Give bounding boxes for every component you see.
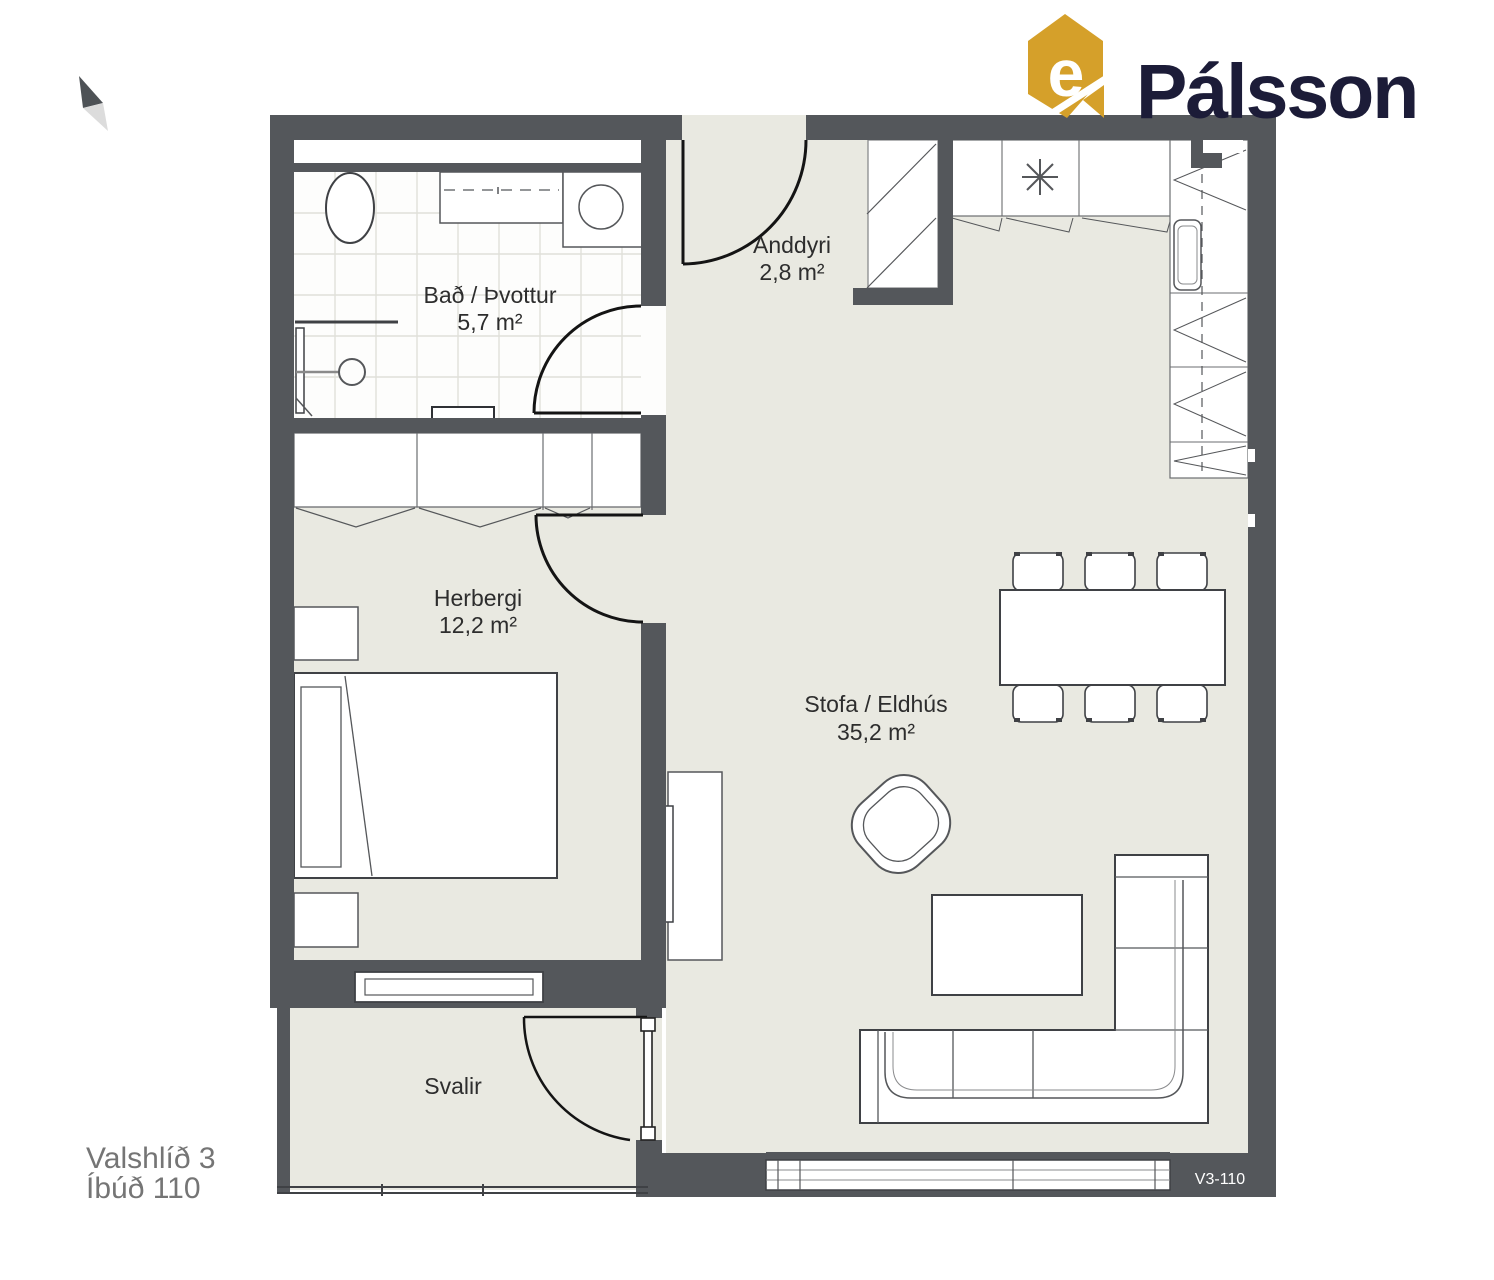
balcony-floor (290, 1008, 636, 1190)
wall-center-upper (641, 115, 666, 306)
logo-letter: e (1048, 36, 1085, 110)
label-entry-name: Anddyri (753, 232, 831, 258)
toilet (326, 173, 374, 243)
wall-closet-stub-v (938, 140, 953, 305)
shower-head (339, 359, 365, 385)
dining-chair (1157, 685, 1207, 722)
label-bathroom-name: Bað / Þvottur (424, 282, 557, 308)
wall-balcony-left (277, 1008, 290, 1192)
dining-chair (1085, 553, 1135, 591)
floorplan-drawing: e Pálsson Bað / Þvottur 5,7 m² Anddyri 2… (0, 0, 1494, 1280)
dining-chair (1157, 553, 1207, 591)
dining-chair (1013, 685, 1063, 722)
address-line-1: Valshlíð 3 (86, 1142, 216, 1175)
nightstand (294, 607, 358, 660)
wall-right (1248, 115, 1276, 1197)
tv-bench (668, 772, 722, 960)
wardrobe (294, 433, 641, 507)
entrance-recess (682, 115, 806, 140)
bathroom-door-threshold (641, 306, 666, 415)
brand-wordmark: Pálsson (1136, 49, 1417, 135)
bed-headboard (301, 687, 341, 867)
bedroom-door-threshold (641, 515, 666, 623)
living-window (766, 1160, 1170, 1190)
nightstand (294, 893, 358, 947)
label-entry-area: 2,8 m² (759, 259, 825, 285)
wall-bath-bedroom (270, 418, 666, 433)
washing-machine (563, 172, 643, 247)
wall-window-bottom-strip (766, 1190, 1170, 1197)
dining-set (1000, 552, 1225, 722)
unit-code: V3-110 (1195, 1171, 1246, 1188)
wall-center-lower (641, 623, 666, 1008)
wall-bath-inner (294, 163, 643, 172)
label-balcony-name: Svalir (424, 1073, 482, 1099)
wall-top-left (270, 115, 682, 140)
wall-left (270, 115, 294, 1008)
cooktop-icon (1022, 159, 1058, 195)
label-living-name: Stofa / Eldhús (804, 691, 947, 717)
entry-closet (868, 140, 938, 288)
wall-window-top-strip (766, 1152, 1170, 1160)
kitchen-counter-top (952, 140, 1191, 216)
bedroom-window (355, 972, 543, 1002)
label-bedroom-name: Herbergi (434, 585, 522, 611)
wall-closet-stub-h (853, 288, 953, 305)
dining-table (1000, 590, 1225, 685)
address-line-2: Íbúð 110 (86, 1172, 201, 1205)
coffee-table (932, 895, 1082, 995)
floorplan-page: e Pálsson Bað / Þvottur 5,7 m² Anddyri 2… (0, 0, 1494, 1280)
north-arrow-icon (79, 76, 108, 131)
palsson-house-icon: e (1028, 14, 1110, 118)
wall-bottom-left (657, 1153, 766, 1197)
vanity (440, 172, 563, 223)
kitchen-counter-right (1170, 140, 1248, 478)
label-bathroom-area: 5,7 m² (457, 309, 523, 335)
dining-chair (1013, 553, 1063, 591)
label-bedroom-area: 12,2 m² (439, 612, 517, 638)
label-living-area: 35,2 m² (837, 719, 915, 745)
dining-chair (1085, 685, 1135, 722)
